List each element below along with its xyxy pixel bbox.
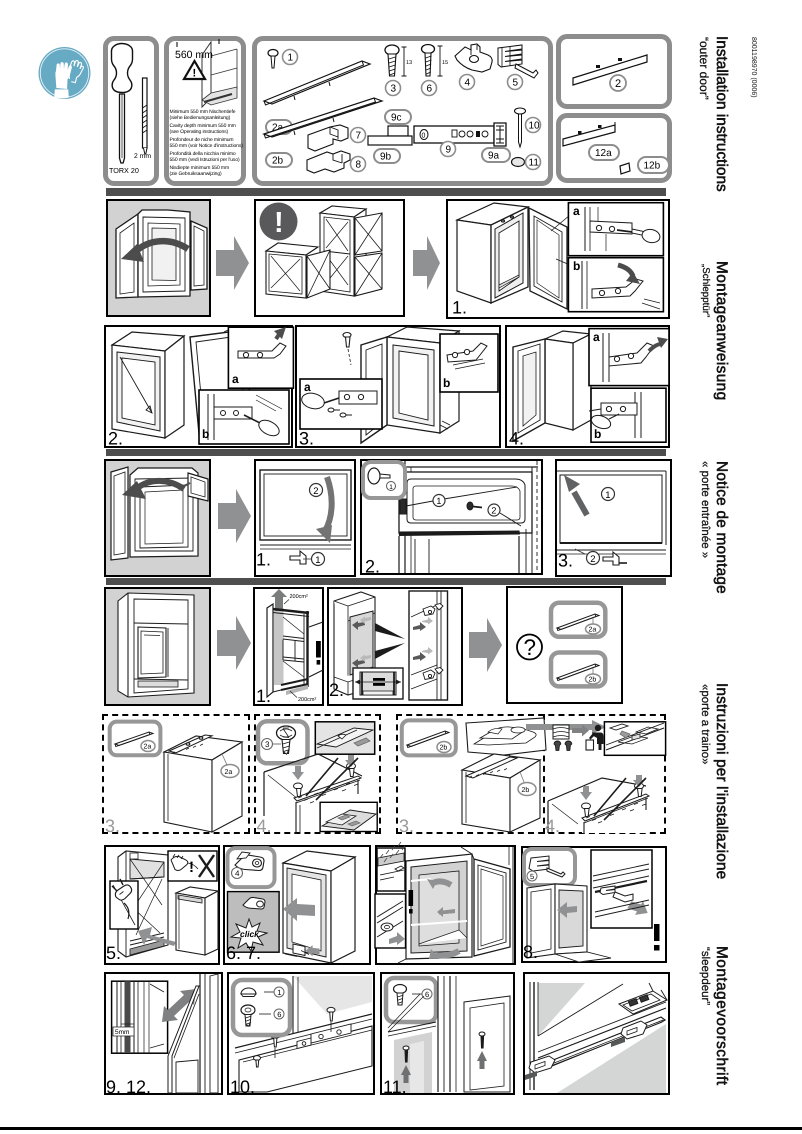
- svg-text:3.: 3.: [399, 816, 414, 836]
- svg-text:2a: 2a: [225, 769, 233, 776]
- svg-text:!: !: [274, 207, 284, 239]
- svg-text:5: 5: [530, 872, 534, 881]
- svg-text:11.: 11.: [383, 1077, 407, 1097]
- svg-text:0: 0: [422, 133, 426, 140]
- svg-text:13: 13: [406, 60, 412, 66]
- svg-text:b: b: [202, 427, 209, 441]
- svg-text:2 mm: 2 mm: [134, 153, 151, 160]
- svg-text:560 mm: 560 mm: [175, 49, 213, 61]
- svg-text:9c: 9c: [391, 113, 402, 124]
- svg-text:1: 1: [288, 53, 294, 64]
- svg-text:200cm²: 200cm²: [289, 594, 308, 600]
- svg-text:?: ?: [523, 635, 536, 660]
- svg-text:11: 11: [529, 158, 540, 169]
- svg-text:12a: 12a: [595, 148, 612, 159]
- svg-text:4.: 4.: [257, 816, 272, 836]
- svg-text:2b: 2b: [440, 743, 448, 751]
- svg-text:2.: 2.: [365, 557, 380, 577]
- svg-text:3.: 3.: [299, 428, 314, 448]
- svg-text:!: !: [193, 68, 197, 80]
- svg-text:4.: 4.: [545, 816, 560, 836]
- svg-text:8.: 8.: [523, 942, 538, 962]
- svg-text:9. 12.: 9. 12.: [106, 1077, 151, 1097]
- svg-text:b: b: [573, 259, 580, 273]
- svg-text:a: a: [593, 330, 600, 344]
- svg-text:10.: 10.: [230, 1077, 255, 1097]
- svg-text:6: 6: [427, 84, 433, 95]
- svg-text:4: 4: [465, 78, 471, 89]
- svg-text:9a: 9a: [488, 151, 500, 162]
- svg-text:5mm: 5mm: [115, 1029, 129, 1036]
- svg-text:4.: 4.: [509, 428, 524, 448]
- svg-text:12b: 12b: [644, 161, 661, 172]
- svg-text:b: b: [443, 376, 450, 390]
- svg-text:3: 3: [265, 740, 270, 749]
- svg-text:2: 2: [590, 554, 595, 565]
- svg-text:9b: 9b: [380, 152, 392, 163]
- svg-text:15: 15: [442, 60, 448, 66]
- svg-text:1.: 1.: [256, 550, 271, 570]
- svg-text:2a: 2a: [588, 627, 596, 634]
- svg-text:2b: 2b: [272, 156, 284, 167]
- svg-text:10: 10: [529, 121, 541, 132]
- svg-text:2: 2: [615, 78, 621, 90]
- svg-text:3: 3: [391, 84, 397, 95]
- svg-text:6. 7.: 6. 7.: [226, 943, 261, 963]
- svg-text:5: 5: [513, 78, 519, 89]
- svg-text:1: 1: [277, 988, 281, 997]
- svg-text:2.: 2.: [108, 428, 123, 448]
- svg-text:4: 4: [235, 869, 240, 878]
- svg-text:7: 7: [356, 131, 362, 142]
- svg-text:TORX 20: TORX 20: [109, 166, 139, 175]
- svg-text:1: 1: [605, 490, 610, 501]
- svg-text:8: 8: [356, 160, 362, 171]
- svg-text:!: !: [189, 859, 194, 876]
- svg-text:a: a: [232, 372, 239, 386]
- svg-text:2: 2: [313, 486, 318, 497]
- svg-text:1: 1: [437, 496, 442, 506]
- svg-text:2a: 2a: [144, 743, 152, 750]
- svg-text:a: a: [304, 380, 311, 394]
- svg-text:b: b: [594, 427, 601, 441]
- svg-text:3.: 3.: [105, 816, 120, 836]
- svg-text:200cm²: 200cm²: [298, 697, 317, 703]
- svg-text:2: 2: [492, 506, 497, 516]
- svg-text:1: 1: [389, 484, 393, 491]
- svg-text:a: a: [573, 204, 580, 218]
- svg-text:click: click: [240, 929, 260, 939]
- svg-text:1: 1: [315, 555, 320, 566]
- svg-text:2b: 2b: [588, 676, 596, 684]
- svg-text:3.: 3.: [558, 551, 573, 571]
- svg-text:6: 6: [425, 990, 429, 999]
- svg-text:5.: 5.: [106, 943, 121, 963]
- svg-text:2.: 2.: [329, 680, 344, 700]
- svg-text:2b: 2b: [522, 786, 530, 794]
- svg-text:1.: 1.: [256, 686, 271, 706]
- svg-text:6: 6: [277, 1010, 281, 1019]
- svg-text:9: 9: [446, 145, 452, 156]
- svg-text:1.: 1.: [452, 297, 467, 317]
